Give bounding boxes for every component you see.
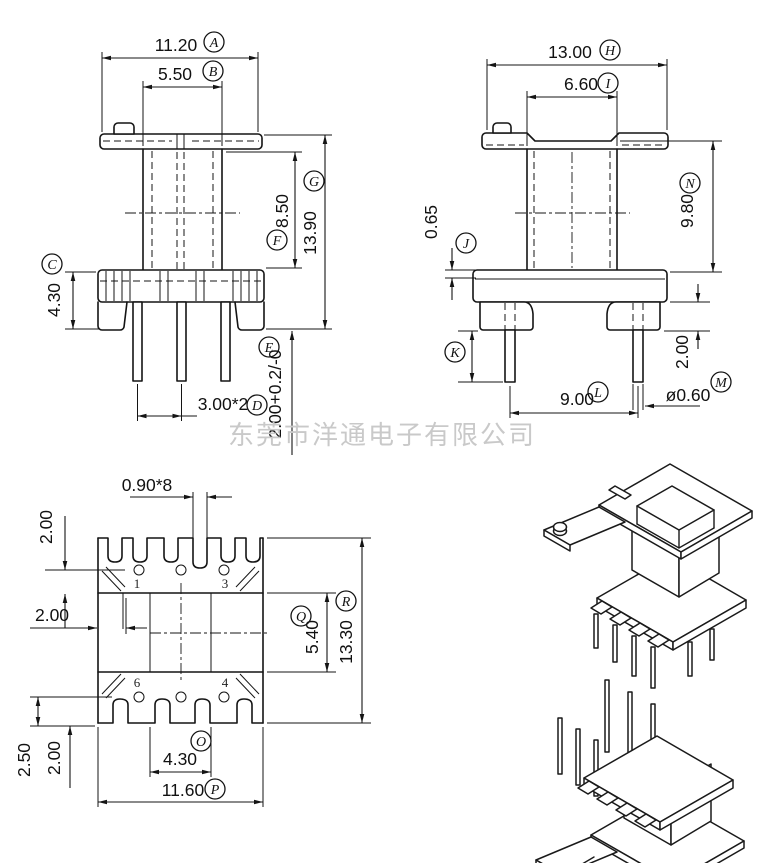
- balloon-g-label: G: [309, 175, 319, 190]
- balloon-b-label: B: [209, 65, 218, 80]
- plan-view-dimensions: 0.90*8 2.00 2.00 5.40 Q 13.30 R 4.: [14, 475, 371, 807]
- dim-l-value: 9.00: [560, 389, 594, 409]
- balloon-l-label: L: [593, 386, 602, 401]
- front-view-dimensions: 11.20 A 5.50 B C 4.30 8.50 F 13.90: [42, 32, 332, 455]
- balloon-o-label: O: [196, 735, 206, 750]
- balloon-i-label: I: [605, 77, 612, 92]
- plan-view-geometry: 1 3 6 4: [98, 538, 270, 723]
- dim-d-value: 3.00*2: [198, 394, 249, 414]
- balloon-h-label: H: [604, 44, 616, 59]
- dim-h-value: 13.00: [548, 42, 592, 62]
- balloon-r-label: R: [341, 595, 351, 610]
- dim-side-leg-height: 2.00: [672, 335, 692, 369]
- balloon-m-label: M: [714, 376, 728, 391]
- watermark: 东莞市洋通电子有限公司: [228, 420, 536, 450]
- iso-view-upper: [544, 464, 752, 688]
- dim-g-value: 13.90: [300, 211, 320, 255]
- balloon-n-label: N: [684, 177, 695, 192]
- dim-plan-bottom-margin: 2.00: [44, 741, 64, 775]
- balloon-j-label: J: [463, 237, 470, 252]
- dim-r-value: 13.30: [336, 620, 356, 664]
- balloon-f-label: F: [272, 234, 282, 249]
- balloon-a-label: A: [209, 36, 219, 51]
- dim-i-value: 6.60: [564, 74, 598, 94]
- front-view: 11.20 A 5.50 B C 4.30 8.50 F 13.90: [42, 32, 332, 455]
- iso-view-lower: [536, 680, 744, 863]
- dim-plan-top-margin: 2.00: [36, 510, 56, 544]
- balloon-p-label: P: [210, 783, 220, 798]
- side-view: 13.00 H 6.60 I 9.80 N 0.65 J: [421, 40, 731, 418]
- pin-label-3: 3: [222, 576, 229, 591]
- dim-c-value: 4.30: [44, 283, 64, 317]
- balloon-e-label: E: [264, 341, 274, 356]
- dim-p-value: 11.60: [162, 780, 205, 800]
- drawing-canvas: 11.20 A 5.50 B C 4.30 8.50 F 13.90: [0, 0, 782, 863]
- front-view-geometry: [98, 123, 264, 381]
- dim-b-value: 5.50: [158, 64, 192, 84]
- dim-j-value: 0.65: [421, 205, 441, 239]
- drawing-sheet: 11.20 A 5.50 B C 4.30 8.50 F 13.90: [0, 0, 782, 863]
- side-view-geometry: [473, 123, 668, 382]
- dim-slot-width: 0.90*8: [122, 475, 173, 495]
- pin-label-6: 6: [134, 675, 141, 690]
- pin-label-1: 1: [134, 576, 141, 591]
- pin-label-4: 4: [222, 675, 229, 690]
- dim-n-value: 9.80: [677, 194, 697, 228]
- dim-a-value: 11.20: [155, 35, 198, 55]
- balloon-d-label: D: [251, 399, 262, 414]
- dim-plan-wall: 2.00: [35, 605, 69, 625]
- plan-view: 1 3 6 4 0.90*8 2.00 2.00 5.40 Q: [14, 475, 371, 807]
- dim-f-value: 8.50: [272, 194, 292, 228]
- balloon-k-label: K: [449, 346, 460, 361]
- dim-o-value: 4.30: [163, 749, 197, 769]
- balloon-q-label: Q: [296, 610, 306, 625]
- side-view-dimensions: 13.00 H 6.60 I 9.80 N 0.65 J: [421, 40, 731, 418]
- dim-m-value: ø0.60: [666, 385, 711, 405]
- dim-plan-bottom-offset: 2.50: [14, 743, 34, 777]
- balloon-c-label: C: [47, 258, 57, 273]
